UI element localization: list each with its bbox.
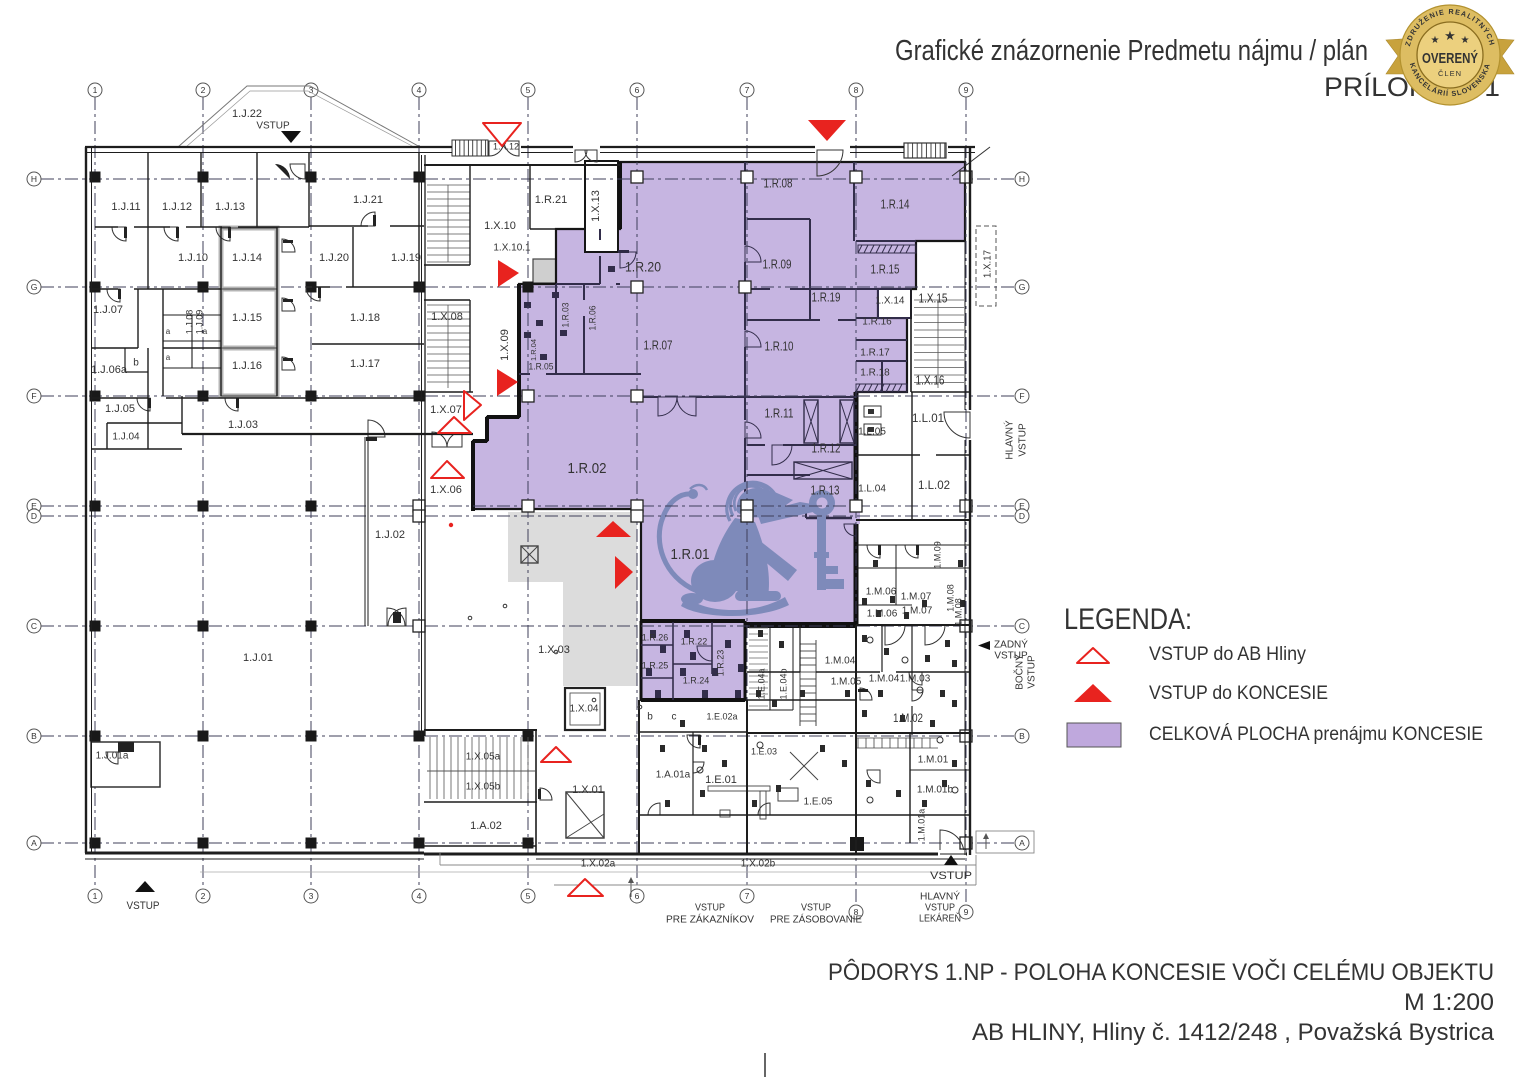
svg-text:AB HLINY, Hliny č. 1412/248 ,: AB HLINY, Hliny č. 1412/248 , Považská B… bbox=[972, 1019, 1495, 1046]
svg-text:1.X.10: 1.X.10 bbox=[484, 220, 516, 232]
svg-text:C: C bbox=[1019, 621, 1025, 631]
svg-text:1.L.02: 1.L.02 bbox=[918, 478, 950, 492]
svg-text:1.X.05a: 1.X.05a bbox=[466, 752, 501, 763]
svg-text:1.J.04: 1.J.04 bbox=[112, 432, 140, 443]
svg-text:b: b bbox=[647, 712, 653, 723]
svg-text:A: A bbox=[31, 838, 37, 848]
svg-text:1.R.13: 1.R.13 bbox=[811, 482, 840, 497]
svg-text:1.R.21: 1.R.21 bbox=[535, 194, 567, 206]
svg-text:G: G bbox=[31, 282, 38, 292]
svg-text:1.X.10.1: 1.X.10.1 bbox=[493, 243, 531, 254]
svg-text:7: 7 bbox=[745, 85, 750, 95]
svg-text:b: b bbox=[133, 358, 139, 369]
svg-text:PRE ZÁSOBOVANIE: PRE ZÁSOBOVANIE bbox=[770, 913, 862, 926]
svg-text:1.J.02: 1.J.02 bbox=[375, 529, 405, 541]
svg-text:1.A.02: 1.A.02 bbox=[470, 820, 502, 832]
svg-text:1.J.15: 1.J.15 bbox=[232, 312, 262, 324]
svg-text:4: 4 bbox=[417, 891, 422, 901]
svg-text:1.J.12: 1.J.12 bbox=[162, 201, 192, 213]
svg-text:2: 2 bbox=[201, 85, 206, 95]
svg-text:1.E.05: 1.E.05 bbox=[804, 797, 833, 808]
svg-text:c: c bbox=[672, 712, 677, 723]
svg-text:1.M.08: 1.M.08 bbox=[953, 598, 963, 626]
svg-text:VSTUP: VSTUP bbox=[695, 903, 725, 914]
svg-text:1.R.09: 1.R.09 bbox=[763, 256, 792, 271]
svg-text:1.M.03: 1.M.03 bbox=[900, 674, 931, 685]
svg-text:5: 5 bbox=[526, 891, 531, 901]
svg-text:1.M.05: 1.M.05 bbox=[831, 677, 862, 688]
svg-text:1.J.21: 1.J.21 bbox=[353, 194, 383, 206]
svg-text:1.A.01a: 1.A.01a bbox=[656, 770, 691, 781]
svg-text:1.R.14: 1.R.14 bbox=[881, 196, 910, 211]
svg-text:1.X.16: 1.X.16 bbox=[916, 372, 945, 387]
svg-text:VSTUP: VSTUP bbox=[925, 903, 955, 914]
svg-text:1.J.16: 1.J.16 bbox=[232, 360, 262, 372]
svg-text:1.R.17: 1.R.17 bbox=[860, 348, 890, 359]
svg-text:1.J.20: 1.J.20 bbox=[319, 252, 349, 264]
svg-text:B: B bbox=[1019, 731, 1025, 741]
svg-text:1.R.12: 1.R.12 bbox=[812, 440, 841, 455]
svg-text:1.R.03: 1.R.03 bbox=[560, 303, 570, 328]
svg-text:1.R.26: 1.R.26 bbox=[642, 632, 669, 642]
svg-text:★: ★ bbox=[1431, 35, 1440, 46]
svg-text:1.R.06: 1.R.06 bbox=[587, 306, 597, 331]
svg-text:1.M.07: 1.M.07 bbox=[901, 592, 932, 603]
svg-text:1: 1 bbox=[93, 891, 98, 901]
svg-text:1.J.19: 1.J.19 bbox=[391, 252, 421, 264]
svg-text:1.R.08: 1.R.08 bbox=[764, 175, 793, 190]
svg-text:1.X.17: 1.X.17 bbox=[983, 250, 994, 278]
svg-text:1.X.02b: 1.X.02b bbox=[741, 859, 776, 870]
svg-text:1.X.06: 1.X.06 bbox=[430, 484, 462, 496]
svg-text:1.X.05b: 1.X.05b bbox=[466, 782, 501, 793]
svg-text:a: a bbox=[203, 327, 208, 336]
svg-text:1.M.06: 1.M.06 bbox=[866, 587, 897, 598]
svg-text:1.L.04: 1.L.04 bbox=[858, 484, 886, 495]
svg-text:1.X.08: 1.X.08 bbox=[431, 311, 463, 323]
svg-text:9: 9 bbox=[964, 85, 969, 95]
svg-text:1: 1 bbox=[93, 85, 98, 95]
svg-text:1.R.24: 1.R.24 bbox=[683, 675, 710, 685]
svg-text:1.X.02a: 1.X.02a bbox=[581, 859, 616, 870]
svg-text:1.E.04b: 1.E.04b bbox=[778, 668, 788, 699]
svg-text:1.M.04: 1.M.04 bbox=[825, 656, 856, 667]
svg-text:1.J.05: 1.J.05 bbox=[105, 403, 135, 415]
svg-text:6: 6 bbox=[635, 85, 640, 95]
svg-text:1.J.08: 1.J.08 bbox=[184, 310, 194, 335]
svg-text:5: 5 bbox=[526, 85, 531, 95]
svg-text:1.X.13: 1.X.13 bbox=[590, 190, 602, 222]
svg-text:H: H bbox=[1019, 174, 1025, 184]
svg-text:1.R.22: 1.R.22 bbox=[681, 636, 708, 646]
svg-text:PRE ZÁKAZNÍKOV: PRE ZÁKAZNÍKOV bbox=[666, 913, 754, 926]
svg-text:1.E.02a: 1.E.02a bbox=[706, 711, 737, 721]
svg-text:LEKÁREŇ: LEKÁREŇ bbox=[919, 912, 961, 925]
svg-text:a: a bbox=[166, 353, 171, 362]
svg-text:VSTUP: VSTUP bbox=[1027, 655, 1038, 689]
svg-text:1.R.04: 1.R.04 bbox=[529, 339, 538, 361]
svg-text:9: 9 bbox=[964, 907, 969, 917]
svg-text:1.M.01a: 1.M.01a bbox=[916, 809, 926, 842]
svg-text:1.J.17: 1.J.17 bbox=[350, 358, 380, 370]
svg-text:C: C bbox=[31, 621, 37, 631]
svg-text:1.R.15: 1.R.15 bbox=[871, 261, 900, 276]
svg-text:D: D bbox=[31, 511, 37, 521]
svg-text:8: 8 bbox=[854, 85, 859, 95]
svg-text:F: F bbox=[1019, 391, 1024, 401]
svg-text:1.X.04: 1.X.04 bbox=[570, 704, 599, 715]
svg-text:1.J.01: 1.J.01 bbox=[243, 652, 273, 664]
svg-text:1.R.05: 1.R.05 bbox=[529, 362, 554, 373]
svg-text:1.X.01: 1.X.01 bbox=[572, 784, 604, 796]
svg-text:1.R.16: 1.R.16 bbox=[862, 317, 892, 328]
svg-text:HLAVNÝ: HLAVNÝ bbox=[1003, 420, 1016, 460]
svg-text:BOČNÝ: BOČNÝ bbox=[1013, 654, 1026, 690]
svg-text:1.E.01: 1.E.01 bbox=[705, 774, 737, 786]
svg-text:1.R.10: 1.R.10 bbox=[765, 338, 794, 353]
svg-text:1.M.07: 1.M.07 bbox=[902, 606, 933, 617]
svg-text:1.X.07: 1.X.07 bbox=[430, 404, 462, 416]
svg-text:1.J.03: 1.J.03 bbox=[228, 419, 258, 431]
svg-text:A: A bbox=[1019, 838, 1025, 848]
svg-text:1.E.04a: 1.E.04a bbox=[756, 668, 766, 699]
svg-text:2: 2 bbox=[201, 891, 206, 901]
svg-text:1.J.01a: 1.J.01a bbox=[96, 751, 129, 762]
svg-text:ČLEN: ČLEN bbox=[1438, 69, 1462, 78]
svg-text:1.L.01: 1.L.01 bbox=[912, 411, 944, 425]
svg-text:4: 4 bbox=[417, 85, 422, 95]
svg-text:1.X.03: 1.X.03 bbox=[538, 644, 570, 656]
svg-text:a: a bbox=[166, 327, 171, 336]
svg-text:1.X.12: 1.X.12 bbox=[493, 141, 519, 151]
svg-text:★: ★ bbox=[1461, 35, 1470, 46]
svg-text:VSTUP: VSTUP bbox=[256, 121, 290, 132]
svg-text:1.E.03: 1.E.03 bbox=[751, 746, 777, 756]
svg-text:M 1:200: M 1:200 bbox=[1404, 989, 1494, 1016]
svg-text:1.J.06a: 1.J.06a bbox=[91, 364, 128, 376]
svg-text:G: G bbox=[1019, 282, 1026, 292]
svg-text:PÔDORYS 1.NP - POLOHA KONCESIE: PÔDORYS 1.NP - POLOHA KONCESIE VOČI CELÉ… bbox=[828, 958, 1494, 986]
svg-text:7: 7 bbox=[745, 891, 750, 901]
svg-text:1.R.19: 1.R.19 bbox=[812, 289, 841, 304]
svg-text:ZADNÝ: ZADNÝ bbox=[994, 638, 1028, 651]
svg-text:1.R.18: 1.R.18 bbox=[860, 368, 890, 379]
svg-text:1.X.15: 1.X.15 bbox=[919, 290, 948, 305]
svg-text:D: D bbox=[1019, 511, 1025, 521]
svg-text:1.R.02: 1.R.02 bbox=[568, 460, 607, 477]
svg-text:VSTUP do AB Hliny: VSTUP do AB Hliny bbox=[1149, 644, 1306, 665]
svg-text:1.J.10: 1.J.10 bbox=[178, 252, 208, 264]
svg-text:1.X.09: 1.X.09 bbox=[499, 329, 511, 361]
svg-text:OVERENÝ: OVERENÝ bbox=[1422, 49, 1478, 67]
svg-text:1.X.14: 1.X.14 bbox=[876, 296, 905, 307]
svg-text:1.R.01: 1.R.01 bbox=[671, 546, 710, 563]
svg-text:CELKOVÁ PLOCHA prenájmu KONCES: CELKOVÁ PLOCHA prenájmu KONCESIE bbox=[1149, 724, 1483, 745]
svg-text:1.M.04: 1.M.04 bbox=[869, 674, 900, 685]
svg-text:1.M.06: 1.M.06 bbox=[867, 609, 898, 620]
svg-text:1.R.25: 1.R.25 bbox=[642, 660, 669, 670]
svg-text:Grafické znázornenie Predmetu: Grafické znázornenie Predmetu nájmu / pl… bbox=[895, 35, 1368, 67]
svg-text:1.J.07: 1.J.07 bbox=[93, 304, 123, 316]
svg-text:1.R.11: 1.R.11 bbox=[765, 405, 794, 420]
svg-text:HLAVNÝ: HLAVNÝ bbox=[920, 890, 960, 903]
svg-text:1.J.18: 1.J.18 bbox=[350, 312, 380, 324]
svg-text:1.M.09: 1.M.09 bbox=[932, 541, 942, 569]
svg-text:★: ★ bbox=[1444, 28, 1456, 43]
svg-text:1.R.23: 1.R.23 bbox=[715, 650, 725, 677]
svg-text:1.M.02: 1.M.02 bbox=[893, 711, 923, 725]
svg-text:B: B bbox=[31, 731, 37, 741]
svg-text:H: H bbox=[31, 174, 37, 184]
svg-text:VSTUP: VSTUP bbox=[127, 900, 160, 912]
svg-text:1.J.11: 1.J.11 bbox=[111, 201, 140, 213]
svg-text:1.M.01b: 1.M.01b bbox=[917, 785, 954, 796]
svg-text:VSTUP: VSTUP bbox=[801, 903, 831, 914]
svg-text:1.J.22: 1.J.22 bbox=[232, 108, 262, 120]
svg-text:F: F bbox=[31, 391, 36, 401]
svg-text:1.R.20: 1.R.20 bbox=[625, 259, 661, 275]
svg-text:LEGENDA:: LEGENDA: bbox=[1064, 603, 1192, 636]
svg-text:1.R.07: 1.R.07 bbox=[644, 337, 673, 352]
svg-text:1.J.14: 1.J.14 bbox=[232, 252, 262, 264]
svg-text:VSTUP do KONCESIE: VSTUP do KONCESIE bbox=[1149, 683, 1328, 704]
svg-text:VSTUP: VSTUP bbox=[930, 870, 972, 882]
svg-text:VSTUP: VSTUP bbox=[1018, 423, 1029, 457]
svg-text:3: 3 bbox=[309, 891, 314, 901]
svg-text:6: 6 bbox=[635, 891, 640, 901]
svg-text:1.L.05: 1.L.05 bbox=[858, 427, 886, 438]
svg-text:1.M.01: 1.M.01 bbox=[918, 755, 949, 766]
svg-text:1.J.13: 1.J.13 bbox=[215, 201, 245, 213]
